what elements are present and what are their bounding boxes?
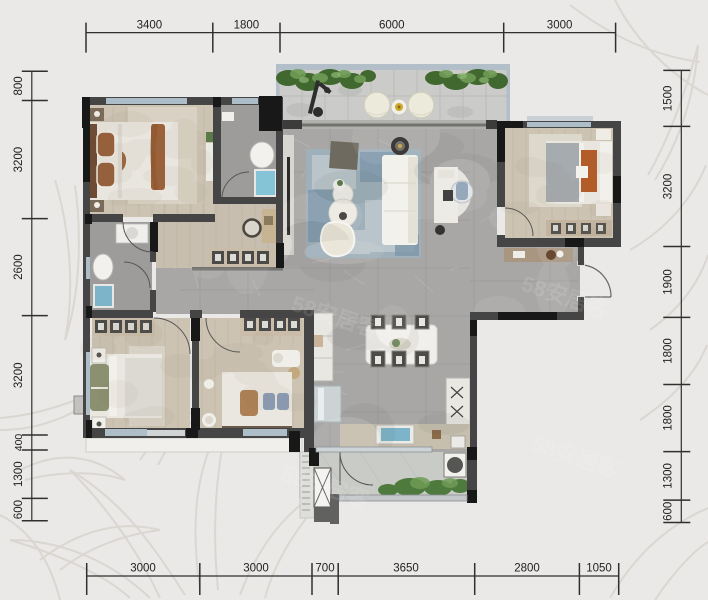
svg-text:600: 600 <box>13 500 25 519</box>
svg-text:3200: 3200 <box>663 174 675 200</box>
svg-text:3000: 3000 <box>547 20 573 32</box>
svg-text:1500: 1500 <box>663 86 675 112</box>
svg-text:3200: 3200 <box>13 363 25 389</box>
svg-text:2600: 2600 <box>13 254 25 280</box>
svg-text:2800: 2800 <box>514 563 540 575</box>
svg-text:3650: 3650 <box>393 563 419 575</box>
svg-text:3000: 3000 <box>243 563 269 575</box>
svg-text:1050: 1050 <box>586 563 612 575</box>
svg-text:1800: 1800 <box>234 20 260 32</box>
svg-text:1300: 1300 <box>13 461 25 487</box>
svg-text:1800: 1800 <box>663 405 675 431</box>
svg-text:1900: 1900 <box>663 269 675 295</box>
svg-text:3400: 3400 <box>137 20 163 32</box>
svg-text:800: 800 <box>13 76 25 95</box>
svg-text:1800: 1800 <box>663 338 675 364</box>
svg-text:400: 400 <box>13 434 25 452</box>
svg-text:600: 600 <box>663 502 675 521</box>
svg-text:700: 700 <box>315 563 334 575</box>
svg-text:6000: 6000 <box>379 20 405 32</box>
svg-text:3200: 3200 <box>13 147 25 173</box>
svg-text:1300: 1300 <box>663 463 675 489</box>
svg-text:3000: 3000 <box>130 563 156 575</box>
